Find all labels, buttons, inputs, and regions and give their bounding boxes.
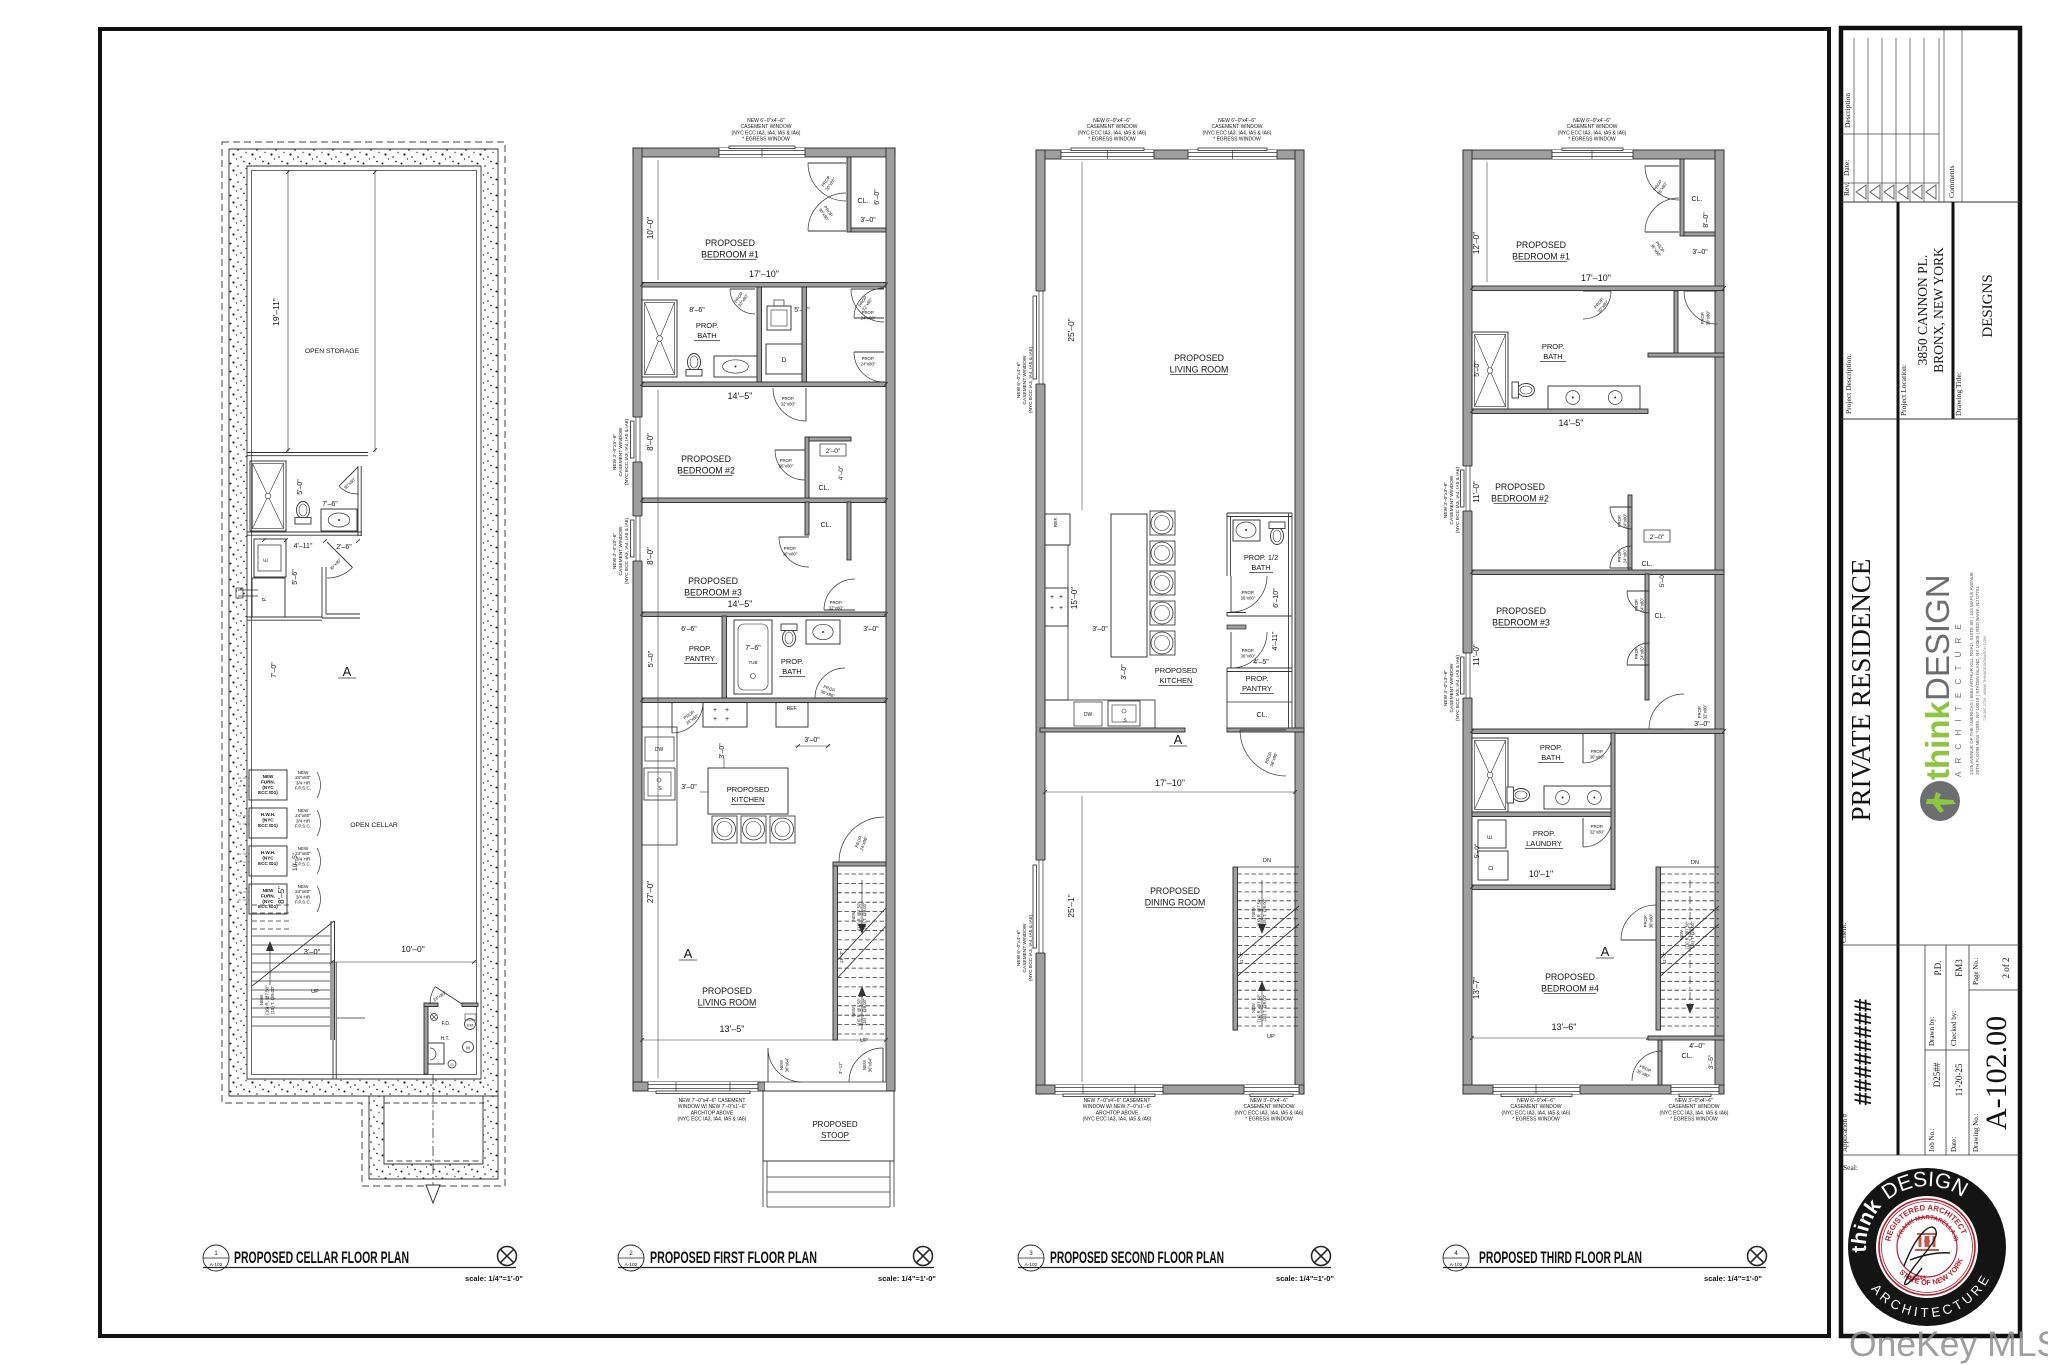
svg-text:DW: DW	[655, 747, 664, 753]
svg-text:8'–6": 8'–6"	[689, 307, 705, 314]
svg-text:+: +	[1050, 594, 1054, 601]
svg-text:A: A	[343, 664, 352, 679]
svg-text:OPEN STORAGE: OPEN STORAGE	[305, 348, 360, 355]
svg-text:F.D.: F.D.	[442, 1021, 451, 1027]
svg-text:10'–5": 10'–5"	[292, 852, 299, 871]
svg-text:Checked by:: Checked by:	[1950, 1011, 1958, 1046]
svg-text:14'–5": 14'–5"	[1559, 418, 1584, 428]
svg-text:D: D	[1489, 865, 1495, 870]
svg-text:D25##: D25##	[1932, 1062, 1942, 1087]
svg-text:BEDROOM #2: BEDROOM #2	[677, 465, 735, 475]
svg-text:BATH: BATH	[1541, 753, 1560, 762]
svg-text:PROP.: PROP.	[696, 321, 718, 330]
svg-text:PROP.24"x80": PROP.24"x80"	[861, 356, 876, 367]
svg-text:4'–11": 4'–11"	[294, 543, 313, 550]
svg-text:FM3: FM3	[1954, 959, 1964, 977]
svg-text:OneKey MLS: OneKey MLS	[1849, 1324, 2048, 1364]
svg-text:EM: EM	[467, 1023, 473, 1028]
svg-text:think: think	[1919, 701, 1956, 780]
svg-text:CL.: CL.	[1655, 613, 1666, 620]
svg-text:Seal:: Seal:	[1843, 1163, 1858, 1172]
svg-text:033343: 033343	[1906, 1276, 1927, 1282]
svg-text:UP: UP	[311, 989, 319, 995]
svg-text:M: M	[466, 1046, 470, 1051]
svg-text:PROP.32"x80": PROP.32"x80"	[1590, 824, 1605, 835]
svg-text:+: +	[1059, 594, 1063, 601]
svg-text:PROPOSED: PROPOSED	[705, 238, 755, 248]
svg-text:718.987.2729 WWW.THINKDESIGN: 718.987.2729 WWW.THINKDESIGNARCH.COM	[1983, 636, 1987, 721]
svg-text:########: ########	[1850, 999, 1877, 1106]
svg-text:Comments: Comments	[1947, 165, 1956, 198]
svg-text:Client:: Client:	[1839, 923, 1848, 943]
svg-text:3'–11": 3'–11"	[838, 1062, 843, 1075]
svg-text:+: +	[1059, 605, 1063, 612]
svg-text:G: G	[450, 1062, 453, 1067]
svg-text:BATH: BATH	[697, 331, 716, 340]
svg-text:3'–0": 3'–0"	[863, 626, 879, 633]
svg-text:Page No.:: Page No.:	[1972, 957, 1980, 985]
svg-text:PROP.30"x80": PROP.30"x80"	[1643, 913, 1654, 928]
svg-text:DN: DN	[1263, 858, 1271, 864]
svg-text:13'–7": 13'–7"	[1472, 977, 1481, 999]
svg-text:5'–0": 5'–0"	[1474, 843, 1481, 858]
svg-text:A: A	[684, 946, 693, 961]
svg-text:5'–0": 5'–0"	[646, 650, 655, 667]
svg-text:5'–0": 5'–0"	[297, 479, 304, 495]
svg-text:10'–1": 10'–1"	[1529, 869, 1553, 879]
svg-text:4'–0": 4'–0"	[1689, 1043, 1705, 1050]
svg-text:17'–10": 17'–10"	[749, 269, 779, 279]
svg-text:PROPOSED SECOND FLOOR PLAN: PROPOSED SECOND FLOOR PLAN	[1050, 1249, 1224, 1267]
svg-text:PROPOSED: PROPOSED	[1150, 886, 1200, 896]
svg-text:BEDROOM #3: BEDROOM #3	[1492, 617, 1550, 627]
svg-text:CL.: CL.	[1257, 712, 1268, 719]
svg-text:Job No.:: Job No.:	[1928, 1128, 1936, 1152]
svg-text:P.: P.	[262, 596, 268, 601]
svg-text:10'–0": 10'–0"	[401, 944, 425, 954]
svg-text:PROP.32"x80": PROP.32"x80"	[1697, 704, 1708, 719]
svg-text:PROP.24"x80": PROP.24"x80"	[1617, 513, 1627, 528]
svg-text:2'–0": 2'–0"	[826, 448, 841, 455]
svg-text:BRONX, NEW YORK: BRONX, NEW YORK	[1931, 247, 1946, 373]
svg-text:+: +	[713, 707, 717, 714]
svg-text:PROP.30"x80": PROP.30"x80"	[1700, 310, 1711, 325]
svg-text:PROP.36"x80": PROP.36"x80"	[1241, 590, 1256, 601]
svg-text:7'–6": 7'–6"	[745, 645, 761, 652]
svg-text:7'–0": 7'–0"	[271, 662, 278, 678]
svg-text:3'–0": 3'–0"	[860, 217, 876, 224]
svg-text:LAUNDRY: LAUNDRY	[1526, 839, 1562, 848]
svg-text:PROP.: PROP.	[1246, 674, 1269, 683]
svg-text:PROPOSED CELLAR FLOOR PLAN: PROPOSED CELLAR FLOOR PLAN	[234, 1249, 409, 1267]
svg-text:PROPOSED FIRST FLOOR PLAN: PROPOSED FIRST FLOOR PLAN	[650, 1249, 817, 1267]
svg-text:4'–5": 4'–5"	[1253, 659, 1269, 666]
svg-text:11'–0": 11'–0"	[1472, 481, 1481, 503]
svg-text:PROPOSED: PROPOSED	[688, 576, 738, 586]
svg-text:UP: UP	[860, 1038, 868, 1044]
svg-text:PROP.24"x80": PROP.24"x80"	[1617, 548, 1627, 563]
svg-text:E: E	[1488, 835, 1494, 839]
svg-text:BEDROOM #1: BEDROOM #1	[701, 249, 759, 259]
svg-text:3'–5": 3'–5"	[1708, 1054, 1715, 1069]
svg-text:PROPOSED: PROPOSED	[727, 785, 770, 794]
svg-text:TUB: TUB	[749, 660, 758, 665]
svg-text:BEDROOM #1: BEDROOM #1	[1512, 251, 1570, 261]
svg-text:CL.: CL.	[1682, 1053, 1693, 1060]
svg-text:8'–0": 8'–0"	[1703, 212, 1710, 228]
svg-text:28TH FLOOR NEW YORK, NY 10019: 28TH FLOOR NEW YORK, NY 10019 | STATEN I…	[1975, 586, 1980, 775]
svg-text:13'–5": 13'–5"	[720, 1024, 745, 1034]
svg-text:3'–0": 3'–0"	[304, 947, 321, 956]
svg-text:PROPOSED: PROPOSED	[1516, 240, 1566, 250]
svg-text:2'–6": 2'–6"	[336, 544, 352, 551]
svg-text:REF.: REF.	[1053, 517, 1059, 527]
svg-text:ARCHITECTURE: ARCHITECTURE	[1954, 616, 1963, 777]
svg-text:15'–0": 15'–0"	[1070, 587, 1079, 609]
svg-text:3'–0": 3'–0"	[804, 737, 820, 744]
svg-text:BEDROOM #4: BEDROOM #4	[1541, 983, 1599, 993]
svg-text:PROP.24"x80": PROP.24"x80"	[1634, 645, 1644, 660]
svg-text:PROP.24"x80": PROP.24"x80"	[861, 310, 876, 321]
svg-text:5'–6": 5'–6"	[292, 569, 299, 585]
svg-text:Drawing No.:: Drawing No.:	[1972, 1113, 1980, 1152]
svg-text:PROP.: PROP.	[689, 644, 711, 653]
svg-text:BEDROOM #2: BEDROOM #2	[1491, 493, 1549, 503]
svg-text:Rev.: Rev.	[1842, 182, 1851, 196]
svg-text:LIVING ROOM: LIVING ROOM	[1170, 364, 1229, 374]
svg-text:CL.: CL.	[819, 485, 830, 492]
svg-text:PROP. 1/2: PROP. 1/2	[1244, 553, 1278, 562]
svg-text:PRIVATE RESIDENCE: PRIVATE RESIDENCE	[1846, 559, 1876, 822]
svg-text:+: +	[713, 716, 717, 723]
svg-text:13'–6": 13'–6"	[1552, 1022, 1577, 1032]
svg-text:REF.: REF.	[787, 706, 798, 712]
svg-text:6'–10": 6'–10"	[1273, 588, 1280, 608]
svg-text:PROPOSED THIRD FLOOR PLAN: PROPOSED THIRD FLOOR PLAN	[1479, 1249, 1642, 1267]
svg-text:11'–3": 11'–3"	[1662, 952, 1667, 965]
svg-text:OPEN CELLAR: OPEN CELLAR	[350, 822, 398, 829]
svg-text:scale: 1/4"=1'-0": scale: 1/4"=1'-0"	[1276, 1274, 1334, 1283]
svg-text:PROP.: PROP.	[1540, 743, 1562, 752]
svg-text:D: D	[782, 357, 787, 364]
svg-text:PROPOSED: PROPOSED	[681, 454, 731, 464]
svg-text:Date:: Date:	[1842, 160, 1851, 176]
svg-text:11'–3": 11'–3"	[839, 951, 844, 964]
svg-text:1325 AVENUE OF THE AMERICAS |: 1325 AVENUE OF THE AMERICAS | 6864 ARTHU…	[1969, 572, 1974, 775]
svg-text:Project Location:: Project Location:	[1899, 364, 1908, 416]
svg-text:3'–0": 3'–0"	[1121, 664, 1128, 680]
svg-text:A: A	[1601, 944, 1610, 959]
svg-text:PROP.: PROP.	[781, 657, 803, 666]
svg-text:BEDROOM #3: BEDROOM #3	[684, 587, 742, 597]
svg-text:DN: DN	[1691, 860, 1699, 866]
svg-text:4'–11": 4'–11"	[1272, 631, 1279, 650]
svg-text:14'–5": 14'–5"	[728, 599, 753, 609]
svg-text:PROP.30"x80": PROP.30"x80"	[1590, 749, 1605, 760]
svg-text:+: +	[725, 716, 729, 723]
svg-text:25'–1": 25'–1"	[1066, 894, 1076, 918]
svg-text:Project Description:: Project Description:	[1844, 354, 1853, 414]
svg-text:PROPOSED: PROPOSED	[812, 1120, 858, 1129]
svg-text:PROP.: PROP.	[1542, 342, 1564, 351]
svg-text:DINING ROOM: DINING ROOM	[1145, 897, 1206, 907]
svg-text:DESIGN: DESIGN	[1919, 574, 1956, 701]
svg-text:scale: 1/4"=1'-0": scale: 1/4"=1'-0"	[465, 1274, 523, 1283]
svg-text:CL.: CL.	[1692, 196, 1703, 203]
svg-text:KITCHEN: KITCHEN	[1160, 676, 1193, 685]
svg-text:PROP.24"x80": PROP.24"x80"	[1634, 597, 1644, 612]
svg-text:STOOP: STOOP	[821, 1131, 849, 1140]
svg-text:3'–0": 3'–0"	[1092, 626, 1108, 633]
svg-text:A: A	[1174, 732, 1183, 747]
svg-text:6'–0": 6'–0"	[874, 189, 881, 205]
svg-text:5'–0": 5'–0"	[1474, 361, 1481, 377]
svg-text:2 of 2: 2 of 2	[2001, 958, 2011, 979]
svg-text:PROPOSED: PROPOSED	[1496, 606, 1546, 616]
svg-text:DESIGNS: DESIGNS	[1980, 274, 1996, 337]
svg-text:KITCHEN: KITCHEN	[732, 795, 765, 804]
svg-text:+: +	[1050, 605, 1054, 612]
svg-text:PROP.36"x80": PROP.36"x80"	[1241, 648, 1256, 659]
svg-text:3'–0": 3'–0"	[681, 784, 697, 791]
svg-text:11'–0": 11'–0"	[1472, 644, 1481, 666]
svg-text:14'–5": 14'–5"	[728, 391, 753, 401]
svg-text:BATH: BATH	[1543, 352, 1562, 361]
svg-text:17'–10": 17'–10"	[1581, 273, 1611, 283]
svg-text:6'–6": 6'–6"	[681, 626, 697, 633]
svg-text:scale: 1/4"=1'-0": scale: 1/4"=1'-0"	[878, 1274, 936, 1283]
svg-text:+: +	[725, 707, 729, 714]
svg-text:PROP.32"x80": PROP.32"x80"	[781, 396, 796, 407]
svg-text:Date:: Date:	[1950, 1137, 1958, 1152]
svg-text:7'–6": 7'–6"	[322, 501, 338, 508]
svg-text:PROPOSED: PROPOSED	[702, 986, 752, 996]
svg-text:27'–0": 27'–0"	[646, 881, 655, 903]
svg-text:11'–3": 11'–3"	[1239, 952, 1244, 965]
svg-text:PROP.36"x80": PROP.36"x80"	[783, 546, 798, 557]
svg-text:3'–0": 3'–0"	[1692, 249, 1708, 256]
svg-text:PROPOSED: PROPOSED	[1174, 353, 1224, 363]
svg-text:11-20-25: 11-20-25	[1954, 1063, 1964, 1096]
svg-text:UP: UP	[1267, 1034, 1275, 1040]
svg-text:10'–0": 10'–0"	[646, 217, 655, 239]
svg-text:E: E	[264, 558, 270, 562]
svg-text:Drawing Title:: Drawing Title:	[1954, 372, 1963, 416]
svg-text:A-102.00: A-102.00	[1980, 1016, 2013, 1130]
svg-text:8'–0": 8'–0"	[646, 433, 655, 451]
svg-text:PROPOSED: PROPOSED	[1495, 482, 1545, 492]
svg-text:PANTRY: PANTRY	[1242, 684, 1272, 693]
svg-text:PROPOSED: PROPOSED	[1155, 666, 1198, 675]
svg-text:BATH: BATH	[782, 667, 801, 676]
svg-text:2'–0": 2'–0"	[1650, 534, 1665, 541]
svg-text:PROP.: PROP.	[1533, 829, 1555, 838]
svg-text:PROPOSED: PROPOSED	[1545, 972, 1595, 982]
svg-text:Drawn by:: Drawn by:	[1928, 1016, 1936, 1046]
svg-text:3'–0": 3'–0"	[719, 743, 726, 759]
svg-text:Description: Description	[1843, 93, 1852, 128]
svg-text:scale: 1/4"=1'-0": scale: 1/4"=1'-0"	[1704, 1274, 1762, 1283]
svg-text:4'–0": 4'–0"	[838, 465, 845, 480]
svg-text:DW: DW	[1084, 712, 1093, 718]
svg-text:12'–0": 12'–0"	[1472, 232, 1481, 254]
svg-text:P.D.: P.D.	[1933, 960, 1943, 975]
svg-text:PROP.36"x80": PROP.36"x80"	[779, 458, 794, 469]
svg-text:CL.: CL.	[858, 198, 869, 205]
svg-text:BATH: BATH	[1251, 563, 1270, 572]
svg-text:8'–5": 8'–5"	[277, 886, 286, 904]
svg-text:H.T.: H.T.	[441, 1036, 450, 1042]
svg-text:PANTRY: PANTRY	[685, 654, 715, 663]
svg-text:CL.: CL.	[1642, 561, 1653, 568]
svg-text:19'–11": 19'–11"	[271, 298, 281, 326]
svg-text:3'–0": 3'–0"	[1694, 721, 1710, 728]
svg-text:3850 CANNON PL.: 3850 CANNON PL.	[1915, 255, 1930, 366]
svg-text:25'–0": 25'–0"	[1066, 318, 1076, 342]
svg-text:CL.: CL.	[821, 522, 832, 529]
svg-text:17'–10": 17'–10"	[1155, 778, 1185, 788]
svg-text:8'–0": 8'–0"	[646, 547, 655, 565]
svg-text:PROP.32"x80": PROP.32"x80"	[829, 600, 844, 611]
svg-text:LIVING ROOM: LIVING ROOM	[698, 997, 757, 1007]
svg-text:Application #: Application #	[1841, 1113, 1849, 1152]
